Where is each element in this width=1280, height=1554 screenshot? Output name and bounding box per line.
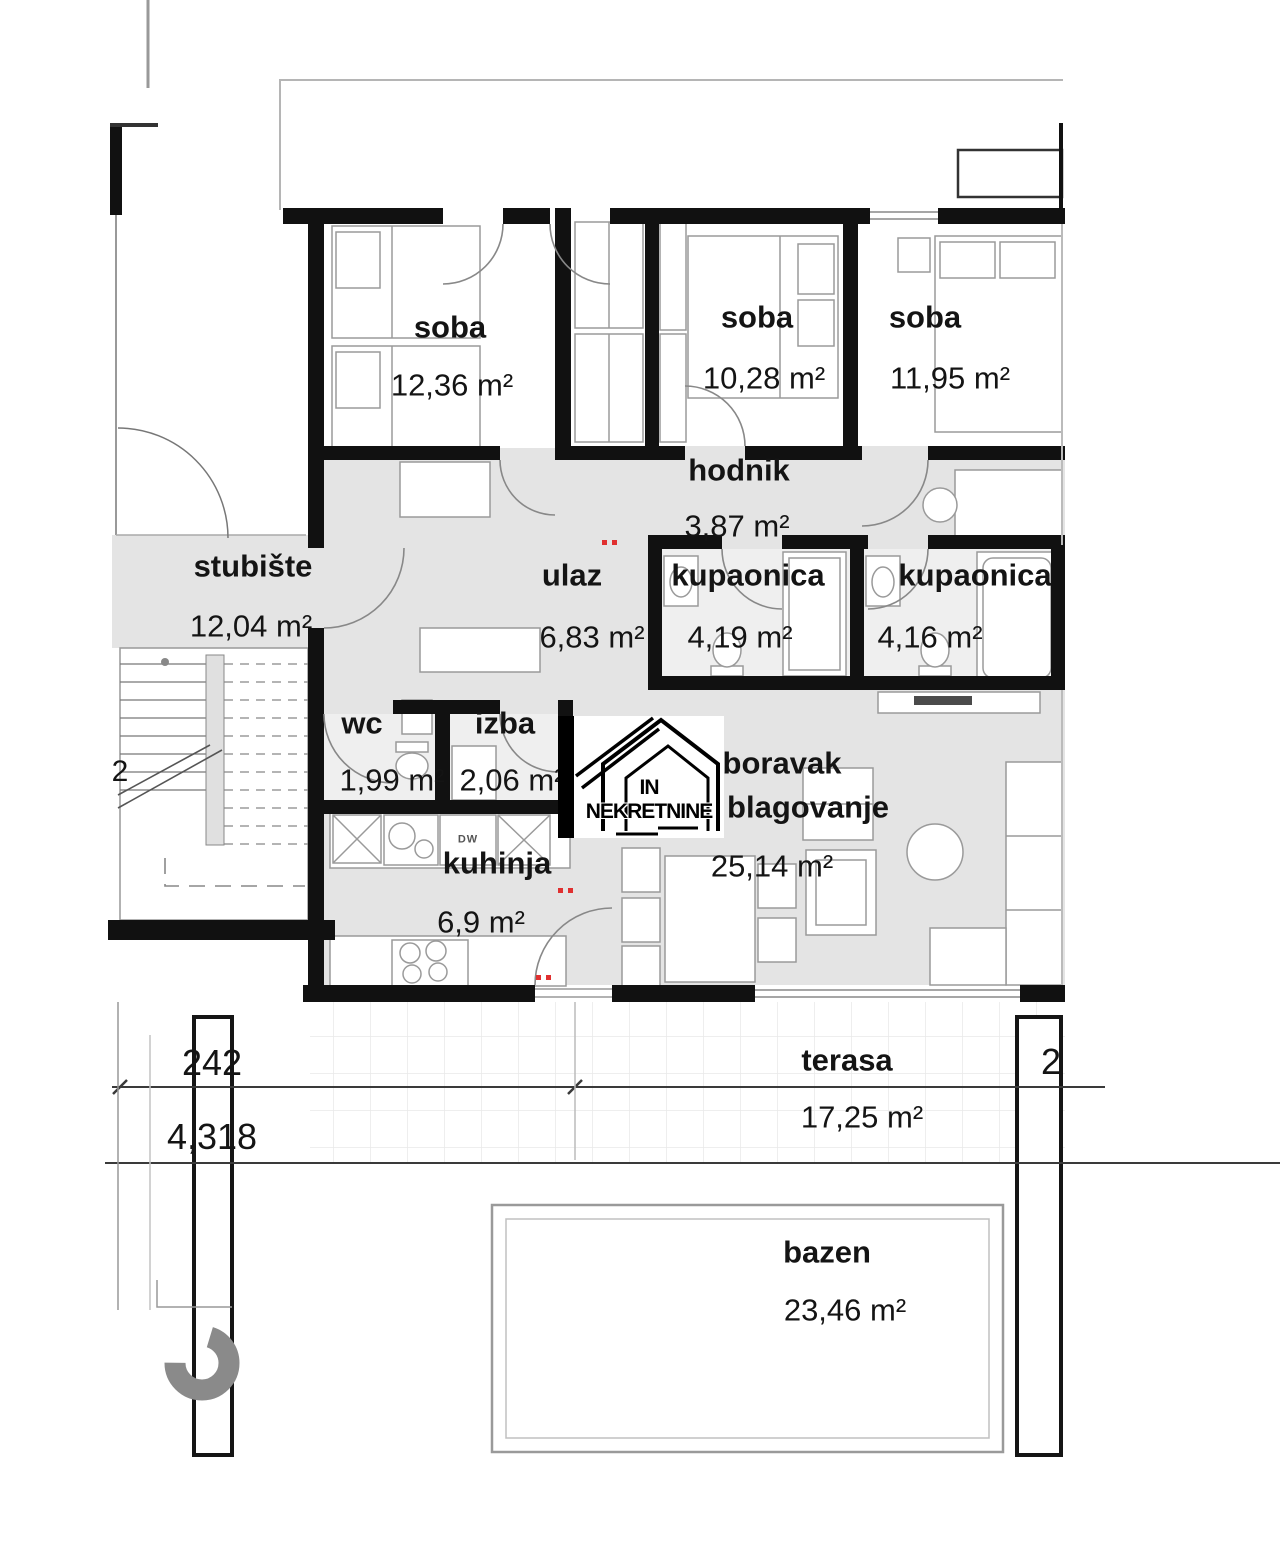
room-label-kupaonica-1: kupaonica: [671, 560, 824, 591]
room-area-ulaz: 6,83 m²: [539, 622, 644, 653]
stair-floor-number: 2: [112, 757, 129, 787]
room-label-kupaonica-2: kupaonica: [898, 560, 1051, 591]
room-area-kuhinja: 6,9 m²: [437, 907, 525, 938]
room-area-boravak: 25,14 m²: [711, 851, 833, 882]
room-area-soba-2: 10,28 m²: [703, 363, 825, 394]
room-label-blagovanje: blagovanje: [727, 792, 889, 823]
room-label-stubiste: stubište: [194, 551, 313, 582]
room-label-izba: izba: [475, 708, 535, 739]
room-area-kupaonica-1: 4,19 m²: [687, 622, 792, 653]
pool-outline: [492, 1205, 1003, 1452]
room-label-hodnik: hodnik: [688, 455, 790, 486]
room-area-kupaonica-2: 4,16 m²: [877, 622, 982, 653]
room-area-wc: 1,99 m²: [339, 765, 444, 796]
dishwasher-label: DW: [458, 835, 478, 846]
room-label-terasa: terasa: [801, 1045, 892, 1076]
watermark: IN NEKRETNINE: [558, 716, 724, 838]
watermark-text: IN NEKRETNINE: [574, 776, 724, 824]
room-label-wc: wc: [341, 708, 382, 739]
room-area-stubiste: 12,04 m²: [190, 611, 312, 642]
room-label-bazen: bazen: [783, 1237, 871, 1268]
room-label-soba-1: soba: [414, 312, 486, 343]
terrace-area: [310, 1002, 1065, 1163]
room-area-bazen: 23,46 m²: [784, 1295, 906, 1326]
staircase: [118, 648, 308, 920]
room-label-kuhinja: kuhinja: [443, 848, 552, 879]
room-label-soba-2: soba: [721, 302, 793, 333]
room-area-soba-3: 11,95 m²: [890, 363, 1010, 394]
dimension-4318: 4,318: [167, 1119, 257, 1155]
room-area-izba: 2,06 m²: [459, 765, 564, 796]
room-area-soba-1: 12,36 m²: [391, 370, 513, 401]
room-label-soba-3: soba: [889, 302, 961, 333]
room-label-ulaz: ulaz: [542, 560, 602, 591]
room-area-terasa: 17,25 m²: [801, 1102, 923, 1133]
floor-plan-page: soba 12,36 m² soba 10,28 m² soba 11,95 m…: [0, 0, 1280, 1554]
dimension-242: 242: [182, 1045, 242, 1081]
room-area-hodnik: 3,87 m²: [684, 511, 789, 542]
dimension-right-edge: 2: [1041, 1044, 1061, 1080]
room-label-boravak: boravak: [723, 748, 842, 779]
